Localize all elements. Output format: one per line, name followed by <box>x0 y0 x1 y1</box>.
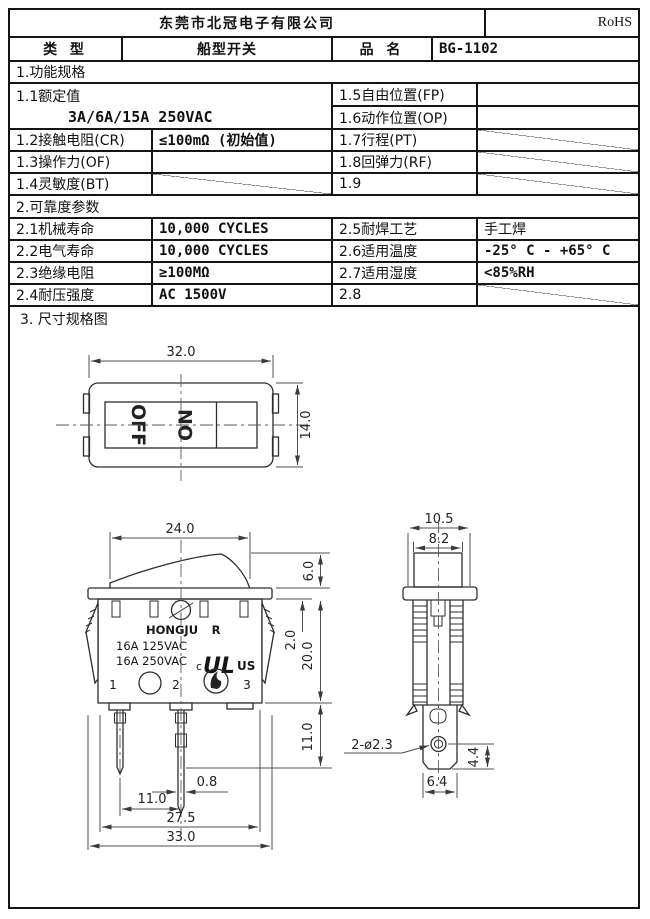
soldering-label: 2.5耐焊工艺 <box>332 218 477 240</box>
contact-resistance-value: ≤100mΩ (初始值) <box>152 129 332 151</box>
snap-width-dim: 27.5 <box>167 811 196 826</box>
sensitivity-label: 1.4灵敏度(BT) <box>10 173 152 195</box>
terminal-width-dim: 6.4 <box>427 775 448 790</box>
product-name-value: BG-1102 <box>432 37 638 61</box>
dielectric-strength-value: AC 1500V <box>152 284 332 306</box>
company-name: 东莞市北冠电子有限公司 <box>10 10 485 37</box>
row-2-8-label: 2.8 <box>332 284 477 306</box>
dimension-drawing: 32.0 OFF ON 14.0 24.0 <box>10 334 638 887</box>
operating-position-label: 1.6动作位置(OP) <box>332 106 477 129</box>
total-width-dim: 33.0 <box>167 830 196 845</box>
insulation-resistance-label: 2.3绝缘电阻 <box>10 262 152 284</box>
type-label: 类 型 <box>10 37 122 61</box>
row-1-9-label: 1.9 <box>332 173 477 195</box>
sensitivity-value <box>152 173 332 195</box>
travel-value <box>477 129 638 151</box>
brand-marking: HONGJU <box>146 623 198 637</box>
pin1-number: 1 <box>109 678 117 692</box>
body-height-dim: 20.0 <box>301 642 316 671</box>
operating-position-value <box>477 106 638 129</box>
temperature-value: -25° C - +65° C <box>477 240 638 262</box>
temperature-label: 2.6适用温度 <box>332 240 477 262</box>
section3-title: 3. 尺寸规格图 <box>10 307 638 334</box>
pin2-number: 2 <box>172 678 180 692</box>
operating-force-label: 1.3操作力(OF) <box>10 151 152 173</box>
side-feet <box>407 705 469 715</box>
front-view: 24.0 HONGJU R 16A 125VAC 16A 250VAC c UL <box>85 522 332 850</box>
rating1-marking: 16A 125VAC <box>116 639 187 653</box>
rated-value-cell: 1.1额定值 3A/6A/15A 250VAC <box>10 83 332 129</box>
type-value: 船型开关 <box>122 37 332 61</box>
hole-note: 2-ø2.3 <box>351 738 393 753</box>
ul-c-marking: c <box>196 660 202 673</box>
row-2-8-value <box>477 284 638 306</box>
certification-circle <box>139 672 161 694</box>
product-name-label: 品 名 <box>332 37 432 61</box>
soldering-value: 手工焊 <box>477 218 638 240</box>
registered-marking: R <box>212 623 221 637</box>
rocker-width-dim: 24.0 <box>166 522 195 537</box>
reliability-table: 2.可靠度参数 2.1机械寿命 10,000 CYCLES 2.5耐焊工艺 手工… <box>10 196 638 307</box>
side-rocker <box>414 553 462 587</box>
section1-title: 1.功能规格 <box>10 62 638 83</box>
functional-spec-table: 1.功能规格 1.1额定值 3A/6A/15A 250VAC 1.5自由位置(F… <box>10 62 638 196</box>
side-view: 10.5 8.2 2-ø2.3 4.4 <box>344 512 494 798</box>
top-width-dim: 32.0 <box>167 345 196 360</box>
rated-value: 3A/6A/15A 250VAC <box>16 108 325 126</box>
mounting-flange <box>88 588 272 599</box>
rebound-force-value <box>477 151 638 173</box>
side-total-width-dim: 10.5 <box>425 512 454 527</box>
row-1-9-value <box>477 173 638 195</box>
pin-pitch-dim: 11.0 <box>138 792 167 807</box>
terminal-thickness-dim: 0.8 <box>197 775 218 790</box>
free-position-label: 1.5自由位置(FP) <box>332 83 477 106</box>
rating2-marking: 16A 250VAC <box>116 654 187 668</box>
mechanical-life-label: 2.1机械寿命 <box>10 218 152 240</box>
datasheet-page: 东莞市北冠电子有限公司 RoHS 类 型 船型开关 品 名 BG-1102 1.… <box>8 8 640 909</box>
panel-thickness-dim: 2.0 <box>284 630 299 651</box>
contact-resistance-label: 1.2接触电阻(CR) <box>10 129 152 151</box>
side-rocker-width-dim: 8.2 <box>429 532 450 547</box>
rebound-force-label: 1.8回弹力(RF) <box>332 151 477 173</box>
rocker-profile <box>110 554 250 588</box>
rohs-mark: RoHS <box>485 10 638 37</box>
pin3-number: 3 <box>243 678 251 692</box>
insulation-resistance-value: ≥100MΩ <box>152 262 332 284</box>
side-flange <box>403 587 477 600</box>
free-position-value <box>477 83 638 106</box>
humidity-label: 2.7适用湿度 <box>332 262 477 284</box>
travel-label: 1.7行程(PT) <box>332 129 477 151</box>
operating-force-value <box>152 151 332 173</box>
electrical-life-label: 2.2电气寿命 <box>10 240 152 262</box>
hole-position-dim: 4.4 <box>467 747 482 768</box>
electrical-life-value: 10,000 CYCLES <box>152 240 332 262</box>
rocker-height-dim: 6.0 <box>302 561 317 582</box>
dielectric-strength-label: 2.4耐压强度 <box>10 284 152 306</box>
top-height-dim: 14.0 <box>299 411 314 440</box>
header-table: 东莞市北冠电子有限公司 RoHS 类 型 船型开关 品 名 BG-1102 <box>10 10 638 62</box>
right-snap-latch <box>262 603 274 683</box>
terminal-length-dim: 11.0 <box>301 723 316 752</box>
left-snap-latch <box>86 603 98 683</box>
section2-title: 2.可靠度参数 <box>10 196 638 218</box>
rated-value-label: 1.1额定值 <box>16 86 325 106</box>
ul-logo: UL <box>203 654 235 679</box>
humidity-value: <85%RH <box>477 262 638 284</box>
top-view: 32.0 OFF ON 14.0 <box>56 345 314 481</box>
mechanical-life-value: 10,000 CYCLES <box>152 218 332 240</box>
ul-us-marking: US <box>237 659 255 673</box>
